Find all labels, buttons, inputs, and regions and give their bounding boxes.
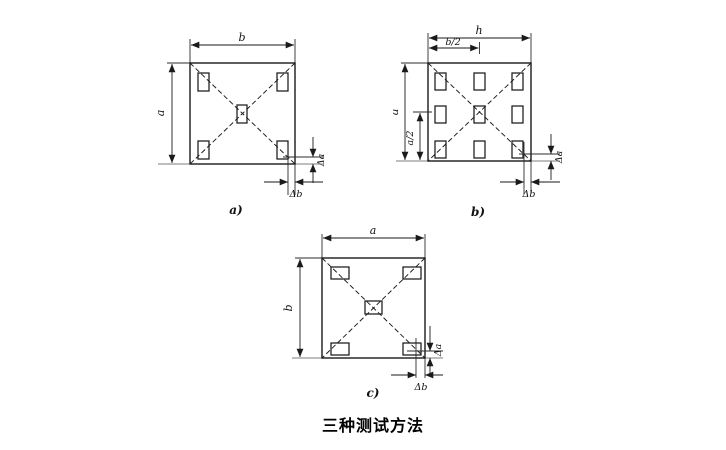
figure-caption: 三种测试方法: [322, 412, 424, 436]
panel-label-a: a): [229, 203, 242, 217]
dim-label-h-b: h: [475, 24, 482, 37]
dim-label-b2-b: b/2: [445, 37, 460, 48]
dim-label-b-c: b: [283, 304, 295, 311]
dimension-top-b: h: [429, 24, 530, 38]
extension-lines-c: [292, 234, 443, 378]
measuring-pads-b: [435, 73, 523, 158]
figure-page: b a Δa Δb a): [0, 0, 726, 450]
diagonals-a: [190, 63, 295, 164]
diagonals-b: [428, 63, 531, 161]
diagram-b: h b/2 a a/2 Δa: [393, 20, 578, 225]
dimension-top-a: b: [191, 31, 294, 45]
panel-label-b: b): [471, 205, 485, 219]
diagram-c: a b Δa Δb c): [283, 226, 468, 411]
delta-detail-b: Δa Δb: [500, 134, 565, 200]
dim-label-a-b: a: [393, 109, 401, 116]
dimension-left-a: a: [155, 64, 172, 163]
dimension-left-c: b: [283, 259, 300, 357]
delta-b-label-a: Δb: [289, 189, 303, 200]
delta-b-label-b: Δb: [522, 189, 536, 200]
panel-label-c: c): [367, 386, 380, 400]
delta-detail-c: Δa Δb: [391, 326, 444, 393]
dimension-top-half-b: b/2: [429, 37, 480, 54]
dim-label-b-a: b: [238, 31, 245, 44]
dimension-left-b: a: [393, 64, 405, 160]
dim-label-a-a: a: [155, 110, 167, 117]
delta-a-label-a: Δa: [316, 153, 327, 167]
dimension-top-c: a: [323, 226, 424, 238]
measuring-pads-a: [198, 73, 288, 159]
delta-b-label-c: Δb: [414, 382, 428, 393]
dim-label-a-c: a: [370, 226, 377, 237]
dim-label-a2-b: a/2: [405, 131, 416, 146]
diagram-a: b a Δa Δb a): [155, 25, 340, 225]
delta-a-label-b: Δa: [554, 150, 565, 164]
delta-a-label-c: Δa: [433, 343, 444, 357]
